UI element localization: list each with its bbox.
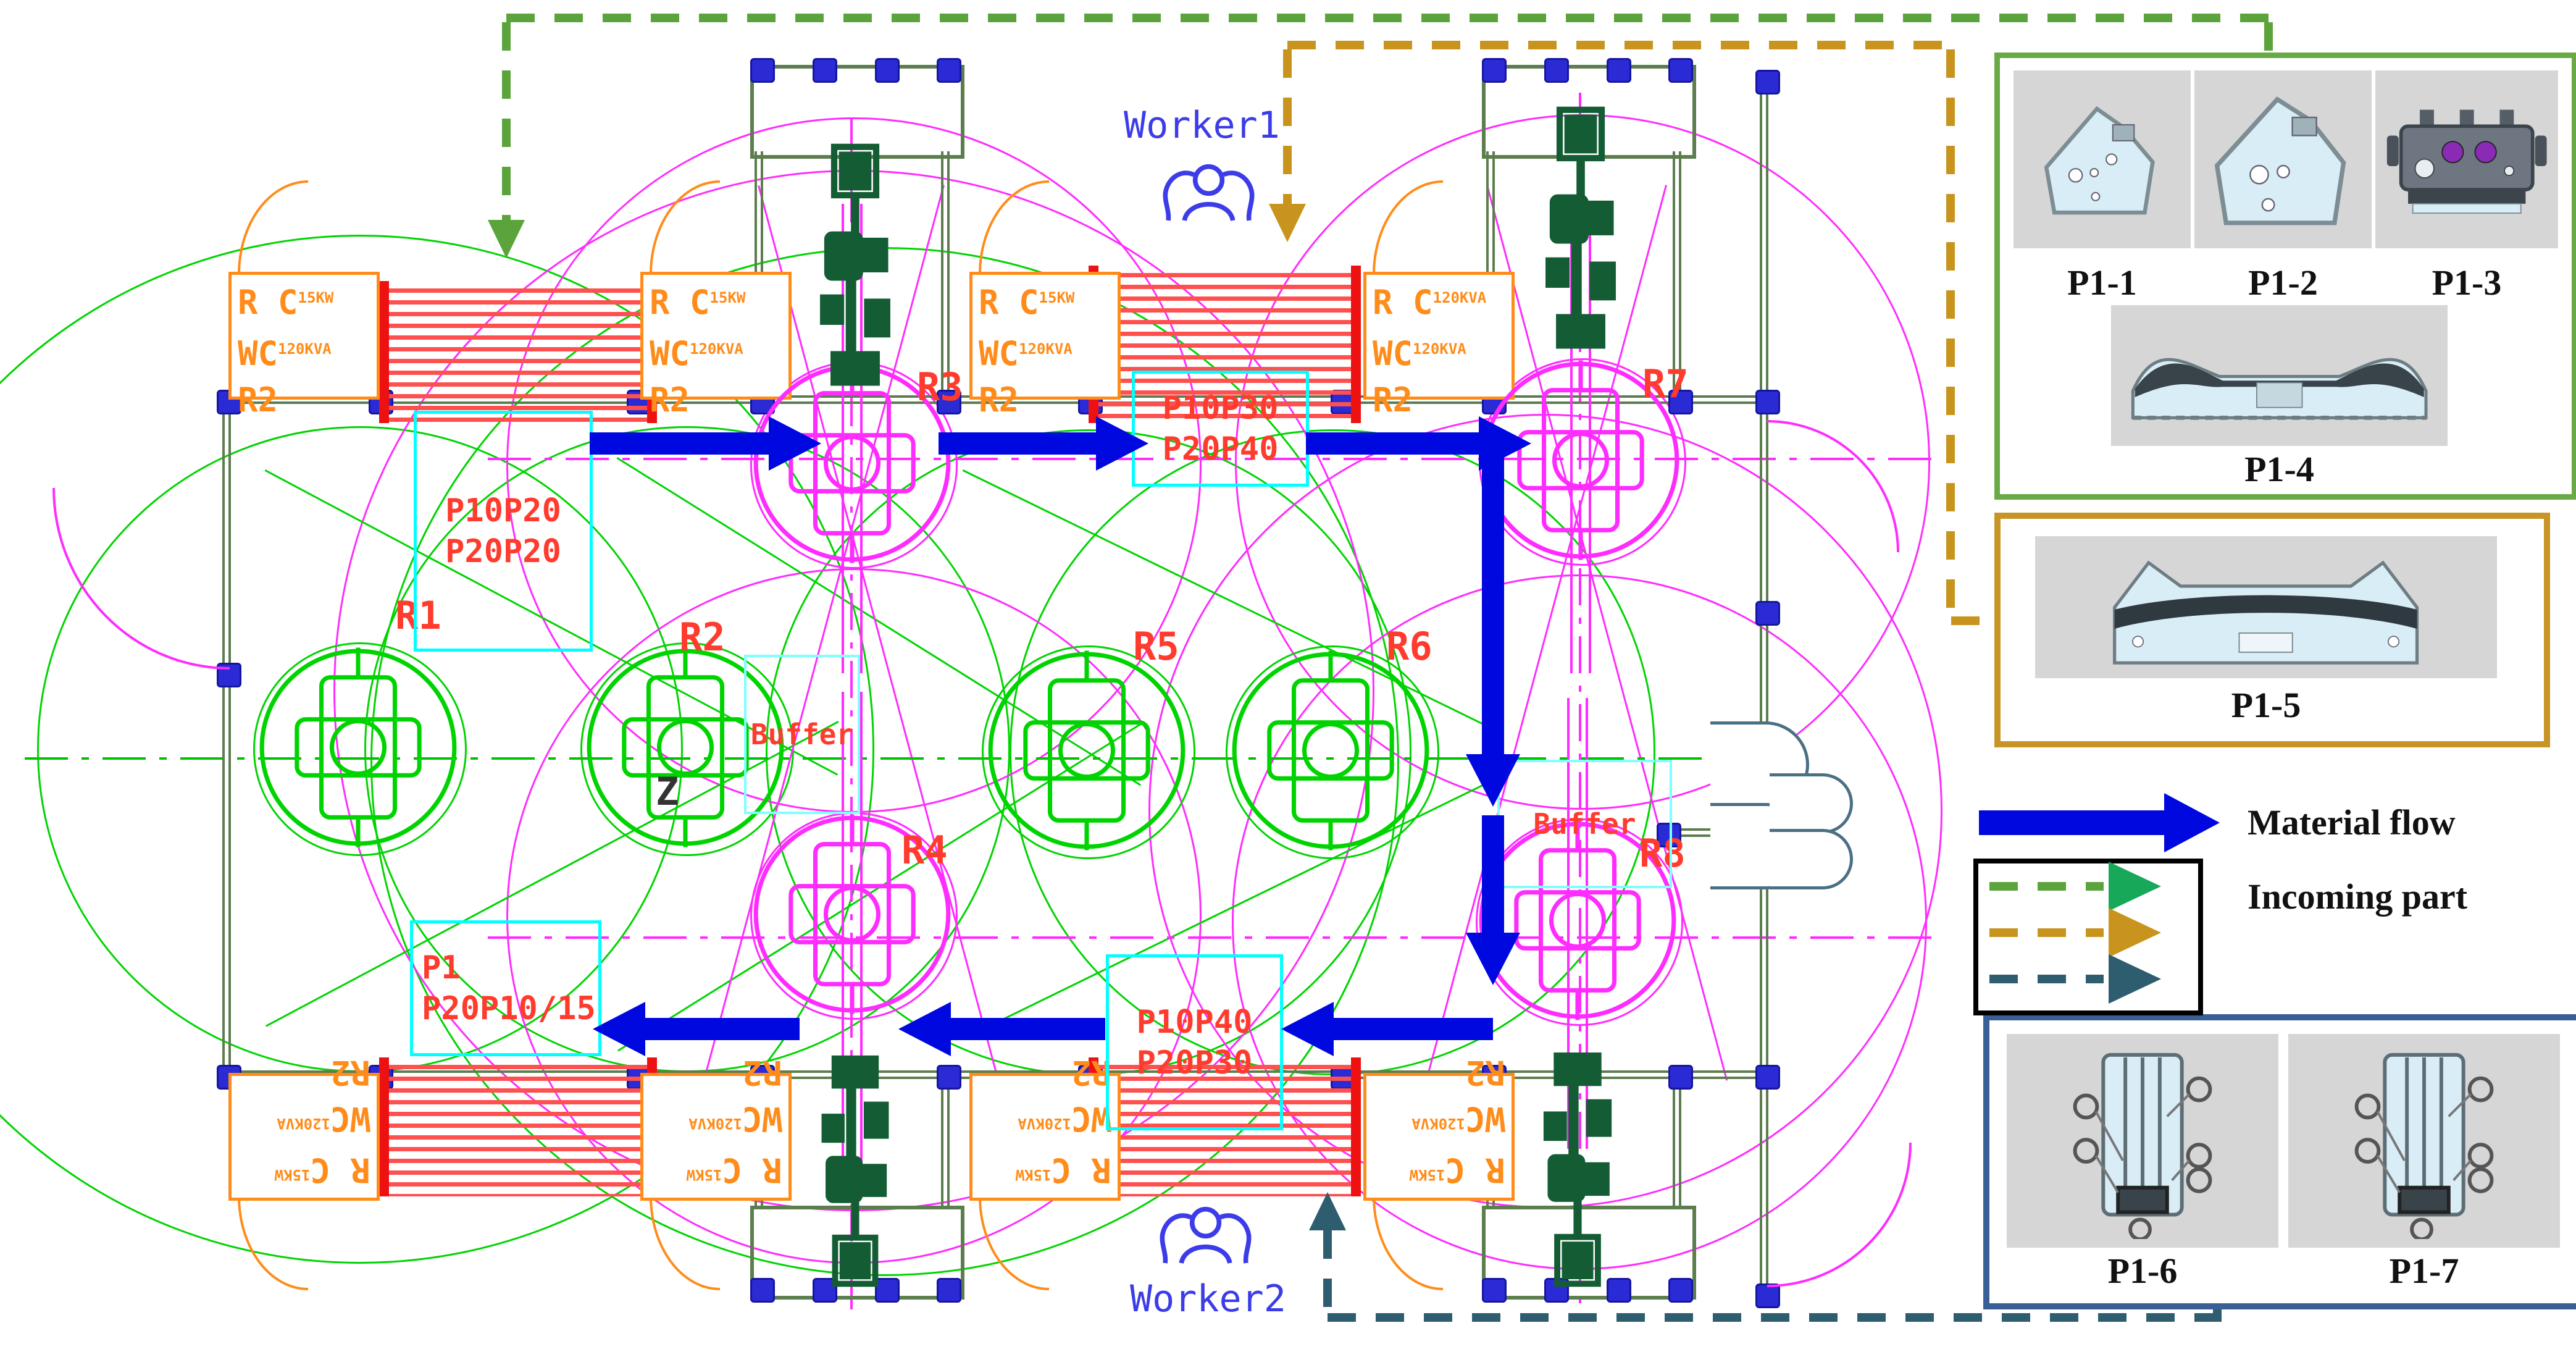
incoming-route-gold <box>1946 49 1955 621</box>
incoming-route-gold <box>1283 49 1292 204</box>
robot-r1 <box>253 642 463 852</box>
wall-post <box>1755 1283 1780 1308</box>
control-cabinet: R C15KW WC120KVA R2 <box>228 272 380 400</box>
frame-post <box>937 1278 961 1303</box>
robot-label-r4: R4 <box>901 828 948 873</box>
door-arc <box>979 1196 1049 1290</box>
material-flow-arrowhead <box>593 1002 645 1056</box>
part-thumbnail-p1-3 <box>2375 70 2558 248</box>
part-caption-p1-3: P1-3 <box>2375 262 2558 303</box>
part-thumbnail-p1-5 <box>2035 536 2497 678</box>
worker1-label: Worker1 <box>1124 104 1280 147</box>
part-panel-p67-group: P1-6 P1-7 <box>1983 1014 2576 1309</box>
control-cabinet: R C15KW WC120KVA R2 <box>969 1073 1121 1201</box>
material-flow-arrow <box>1334 1018 1493 1040</box>
part-panel-p1-group: P1-1 P1-2 P1-3 P1-4 <box>1994 53 2576 500</box>
frame-post <box>1607 58 1631 83</box>
material-flow-arrowhead <box>1466 754 1520 807</box>
flow-marker-p1: P1P20P10/15 <box>410 920 601 1056</box>
fixture-rail <box>941 1078 950 1206</box>
part-thumbnail-p1-2 <box>2194 70 2372 248</box>
part-thumbnail-p1-7 <box>2288 1034 2560 1248</box>
wall-post <box>1755 601 1780 626</box>
double-door-leaf <box>1770 829 1853 889</box>
incoming-route-gold <box>1951 616 1994 625</box>
wall-post <box>1755 1065 1780 1090</box>
incoming-route-green <box>506 14 2272 22</box>
incoming-arrowhead-green <box>488 220 525 258</box>
robot-label-r7: R7 <box>1642 361 1689 406</box>
control-cabinet: R C15KW WC120KVA R2 <box>969 272 1121 400</box>
fixture-rail <box>1673 1078 1681 1206</box>
frame-post <box>1544 58 1569 83</box>
incoming-route-green <box>502 22 511 220</box>
legend-incoming-green <box>1989 882 2104 891</box>
wall-post <box>1755 70 1780 95</box>
incoming-route-teal <box>1328 1313 2222 1322</box>
door-arc <box>1373 1196 1443 1290</box>
legend-incoming-teal <box>1989 975 2104 983</box>
buffer-right: Buffer <box>1497 760 1672 888</box>
part-caption-p1-1: P1-1 <box>2014 262 2191 303</box>
flow-marker-p10p40: P10P40P20P30 <box>1106 954 1283 1130</box>
legend-incoming-teal-head <box>2109 954 2161 1004</box>
control-cabinet: R C15KW WC120KVA R2 <box>228 1073 380 1201</box>
flow-marker-p10p20: P10P20P20P20 <box>414 411 593 652</box>
worker2-label: Worker2 <box>1130 1277 1286 1321</box>
legend-incoming-gold <box>1989 928 2104 937</box>
robot-r6 <box>1226 645 1436 855</box>
worker1-icon <box>1155 154 1263 229</box>
incoming-route-gold <box>1287 41 1954 49</box>
door-arc <box>238 1196 308 1290</box>
legend-incoming-gold-head <box>2109 908 2161 957</box>
frame-post <box>813 58 837 83</box>
control-cabinet: R C15KW WC120KVA R2 <box>1363 1073 1515 1201</box>
part-caption-p1-7: P1-7 <box>2288 1250 2560 1292</box>
frame-post <box>875 58 900 83</box>
material-flow-arrow <box>951 1018 1105 1040</box>
welding-fixture <box>1525 1044 1630 1288</box>
frame-post <box>750 1278 775 1303</box>
double-door-leaf <box>1770 773 1853 834</box>
frame-post <box>937 58 961 83</box>
material-flow-arrowhead <box>898 1002 951 1056</box>
incoming-route-green <box>2264 22 2273 54</box>
part-panel-p1-5: P1-5 <box>1994 513 2550 747</box>
wall-post <box>1668 1065 1693 1090</box>
material-flow-arrow <box>1306 432 1479 455</box>
welding-fixture <box>1528 99 1633 364</box>
incoming-route-teal <box>1323 1230 1332 1314</box>
frame-post <box>1482 1278 1507 1303</box>
material-flow-arrowhead <box>769 416 821 471</box>
material-flow-arrow <box>1482 455 1504 754</box>
robot-r5 <box>982 645 1192 855</box>
legend-material-flow-arrowhead <box>2164 793 2220 852</box>
legend-incoming-label: Incoming part <box>2248 876 2467 917</box>
material-flow-arrowhead <box>1281 1002 1334 1056</box>
part-caption-p1-2: P1-2 <box>2194 262 2372 303</box>
conveyor-top-left <box>379 281 657 423</box>
material-flow-arrow <box>590 432 769 455</box>
wall-right <box>1760 80 1768 1294</box>
robot-label-r2: R2 <box>679 615 726 660</box>
material-flow-arrow <box>645 1018 800 1040</box>
part-thumbnail-p1-6 <box>2007 1034 2278 1248</box>
incoming-arrowhead-gold <box>1269 204 1306 242</box>
worker2-icon <box>1152 1197 1260 1271</box>
robot-label-r5: R5 <box>1133 624 1179 669</box>
centerline-magenta-bottom <box>488 936 1933 939</box>
part-thumbnail-p1-4 <box>2111 305 2448 446</box>
welding-fixture <box>803 1047 908 1288</box>
z-annotation: Z <box>656 769 679 814</box>
wall-post <box>937 1065 961 1090</box>
cell-layout-drawing: R C15KW WC120KVA R2 R C15KW WC120KVA R2 … <box>0 0 2576 1357</box>
frame-post <box>750 58 775 83</box>
control-cabinet: R C15KW WC120KVA R2 <box>640 1073 792 1201</box>
material-flow-arrowhead <box>1096 416 1148 471</box>
material-flow-arrow <box>1482 815 1504 933</box>
buffer-left: Buffer <box>744 655 860 814</box>
door-arc <box>238 180 308 274</box>
legend-material-flow-arrow <box>1979 810 2164 835</box>
part-thumbnail-p1-1 <box>2014 70 2191 248</box>
part-caption-p1-5: P1-5 <box>2035 684 2497 726</box>
robot-label-r6: R6 <box>1386 624 1432 669</box>
frame-post <box>1668 1278 1693 1303</box>
flow-marker-p10p30: P10P30P20P40 <box>1132 371 1309 487</box>
part-caption-p1-6: P1-6 <box>2007 1250 2278 1292</box>
material-flow-arrowhead <box>1466 933 1520 985</box>
legend-incoming-green-head <box>2109 862 2161 911</box>
material-flow-arrow <box>939 432 1096 455</box>
legend-material-flow-label: Material flow <box>2248 802 2456 843</box>
door-arc-magenta <box>1767 1143 1912 1287</box>
welding-fixture <box>803 142 908 395</box>
robot-label-r3: R3 <box>917 364 963 410</box>
frame-post <box>1668 58 1693 83</box>
wall-post <box>1755 390 1780 414</box>
frame-post <box>1482 58 1507 83</box>
door-arc <box>650 1196 720 1290</box>
conveyor-bottom-left <box>379 1057 657 1196</box>
part-caption-p1-4: P1-4 <box>2111 448 2448 490</box>
incoming-arrowhead-teal <box>1309 1192 1346 1230</box>
